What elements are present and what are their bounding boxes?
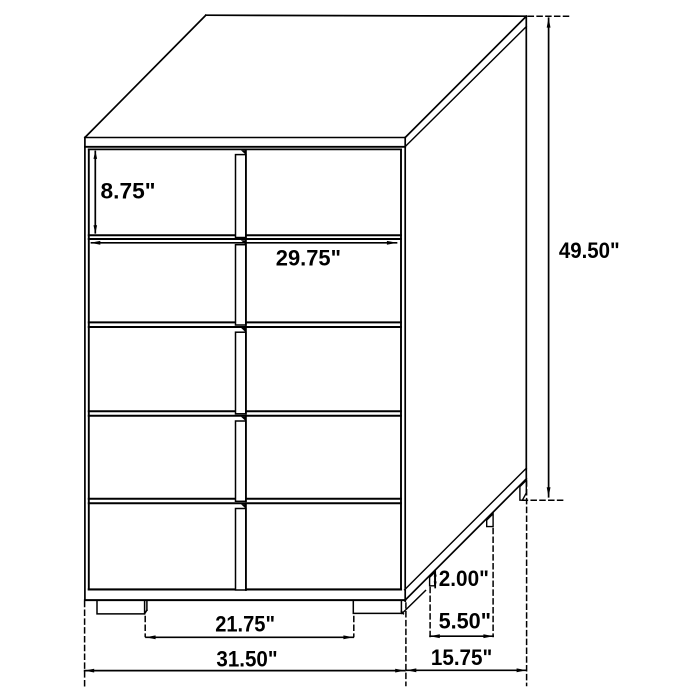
svg-text:49.50": 49.50" [559,238,620,263]
svg-text:8.75": 8.75" [101,179,156,204]
svg-text:31.50": 31.50" [216,647,277,672]
svg-text:29.75": 29.75" [276,246,341,271]
svg-text:2.00": 2.00" [439,566,489,591]
svg-text:15.75": 15.75" [431,645,492,670]
svg-text:21.75": 21.75" [215,611,275,636]
svg-text:5.50": 5.50" [439,608,491,633]
